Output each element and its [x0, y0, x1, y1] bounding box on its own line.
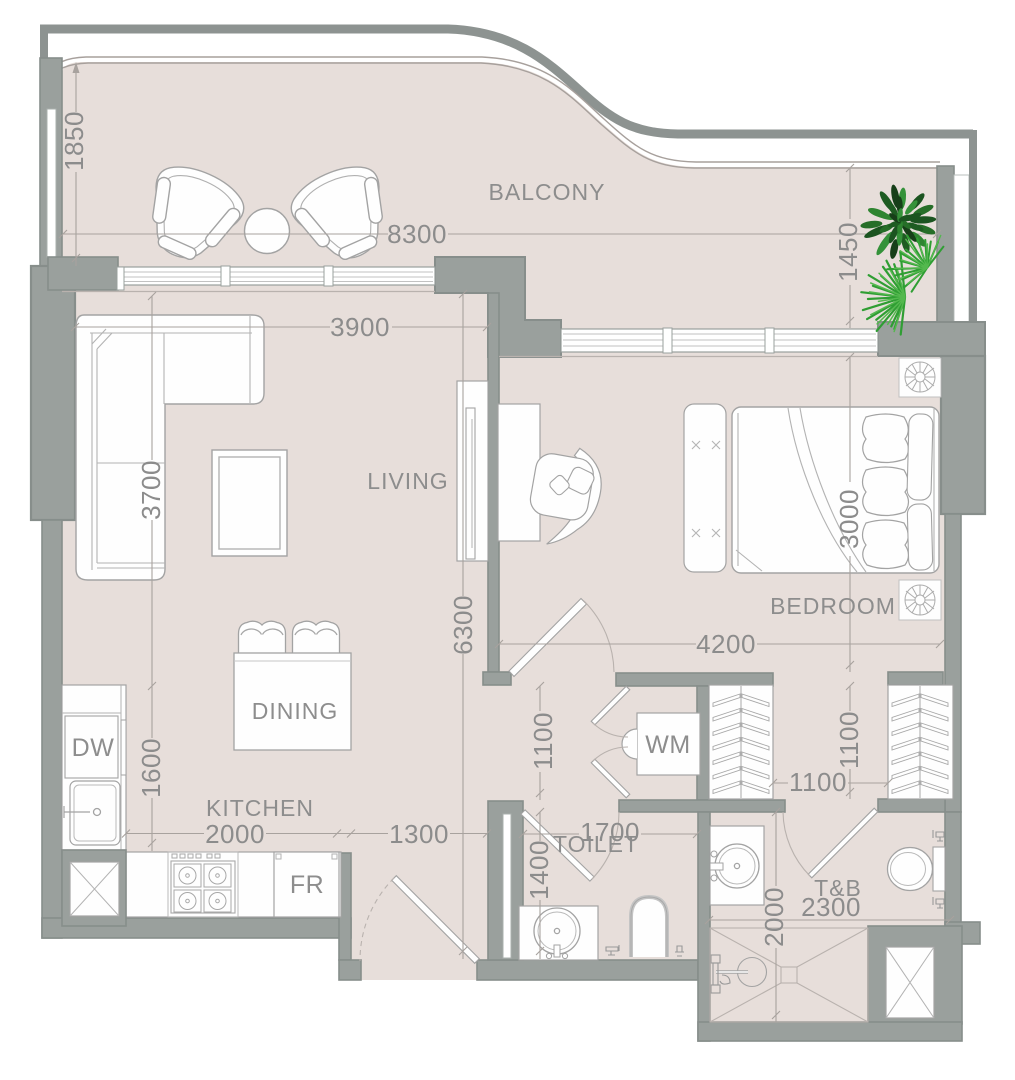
svg-text:1450: 1450 — [833, 222, 863, 282]
svg-text:4200: 4200 — [696, 629, 756, 659]
svg-text:1100: 1100 — [789, 767, 847, 797]
svg-text:8300: 8300 — [387, 219, 447, 249]
svg-text:FR: FR — [290, 871, 324, 899]
svg-text:1850: 1850 — [59, 111, 89, 171]
svg-text:1100: 1100 — [834, 711, 864, 769]
svg-text:1100: 1100 — [528, 712, 558, 770]
svg-text:2000: 2000 — [205, 819, 265, 849]
svg-text:2000: 2000 — [759, 887, 789, 947]
svg-text:DINING: DINING — [252, 698, 339, 724]
svg-text:1600: 1600 — [136, 738, 166, 798]
svg-text:T&B: T&B — [814, 875, 862, 901]
svg-text:BEDROOM: BEDROOM — [770, 593, 896, 619]
svg-text:WM: WM — [645, 731, 690, 759]
svg-text:3700: 3700 — [136, 460, 166, 520]
svg-text:3900: 3900 — [330, 312, 390, 342]
svg-text:KITCHEN: KITCHEN — [206, 795, 314, 821]
svg-text:TOILET: TOILET — [553, 831, 639, 857]
svg-text:3000: 3000 — [834, 489, 864, 549]
svg-text:1300: 1300 — [389, 819, 449, 849]
svg-text:BALCONY: BALCONY — [489, 179, 606, 205]
svg-text:1400: 1400 — [524, 840, 554, 900]
svg-text:LIVING: LIVING — [367, 468, 448, 494]
svg-text:6300: 6300 — [448, 595, 478, 655]
svg-text:DW: DW — [72, 734, 115, 762]
